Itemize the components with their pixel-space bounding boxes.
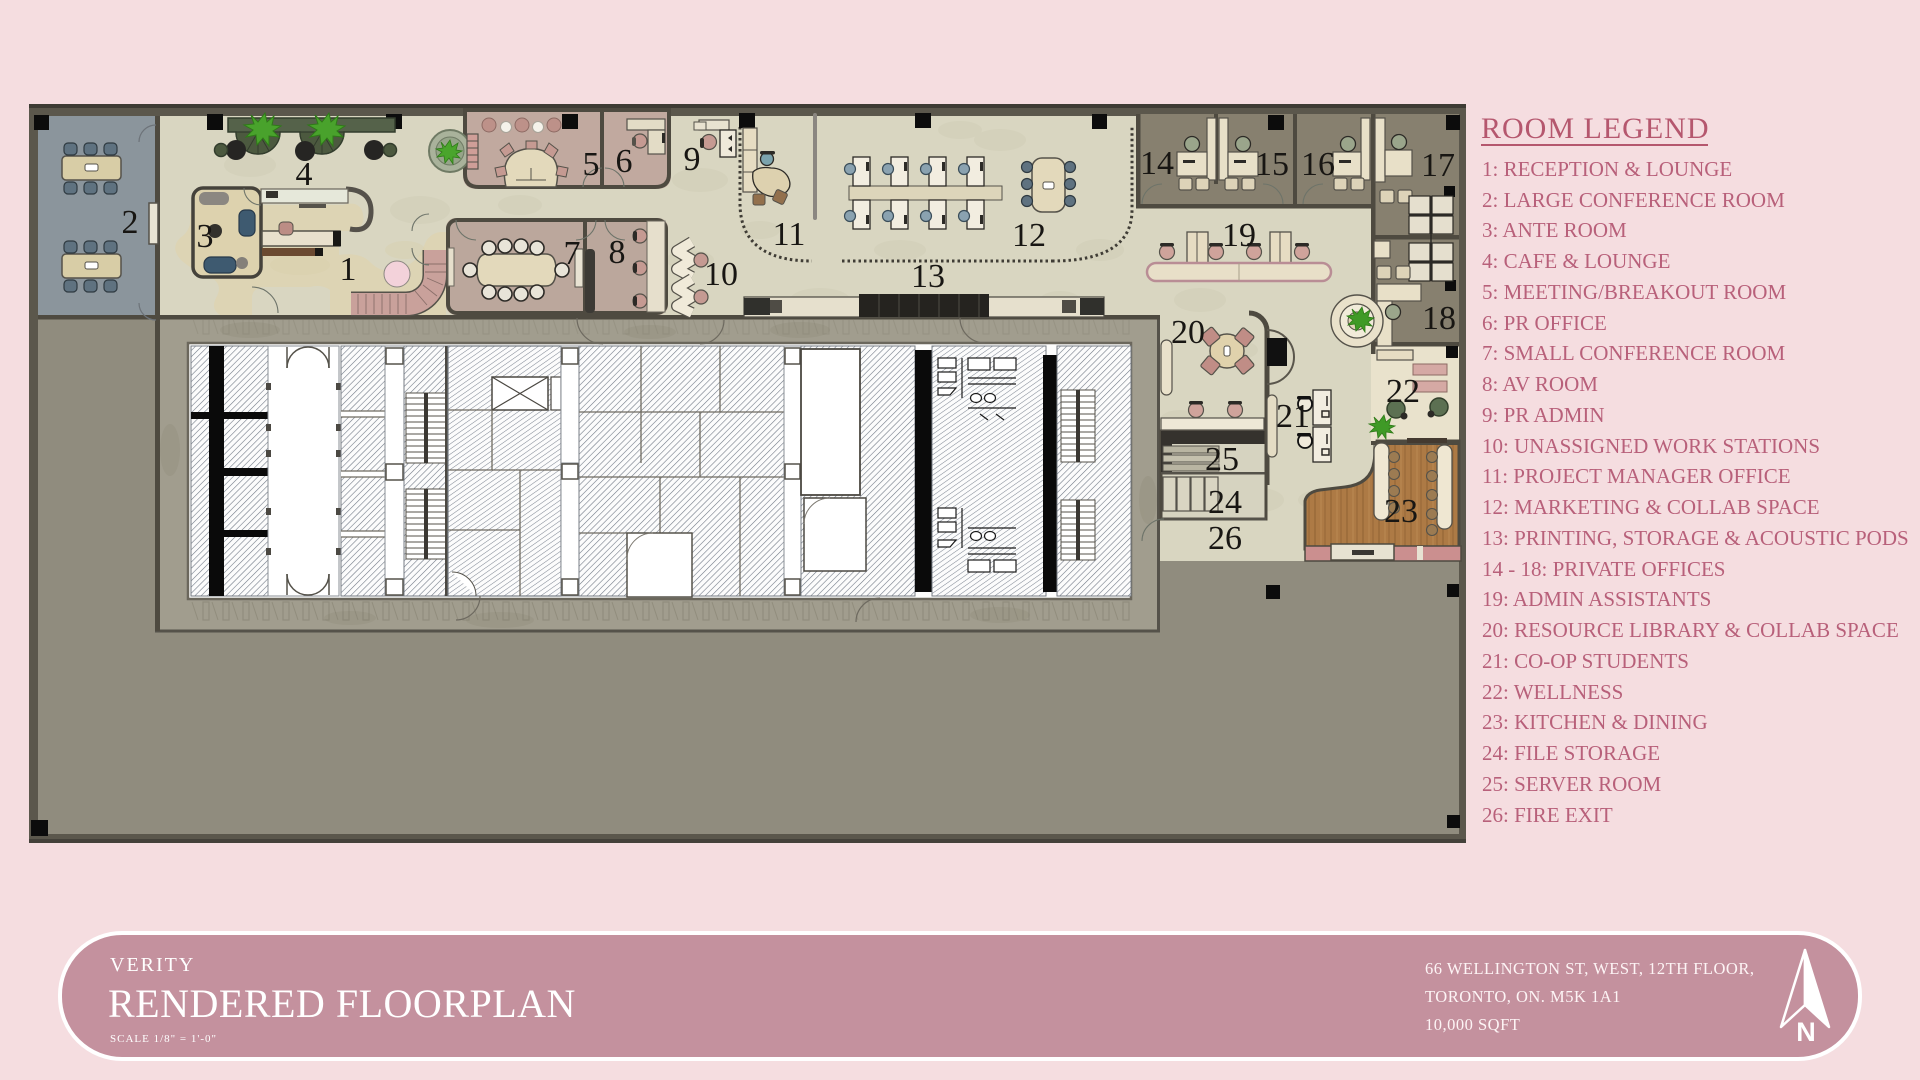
svg-text:SCALE 1/8" = 1'-0": SCALE 1/8" = 1'-0" xyxy=(110,1033,217,1045)
svg-text:7: 7 xyxy=(564,235,581,272)
svg-text:22: 22 xyxy=(1386,373,1420,410)
svg-text:26: 26 xyxy=(1208,520,1242,557)
svg-text:20: 20 xyxy=(1171,314,1205,351)
svg-text:11: PROJECT MANAGER OFFICE: 11: PROJECT MANAGER OFFICE xyxy=(1482,464,1791,488)
svg-text:3: ANTE ROOM: 3: ANTE ROOM xyxy=(1482,218,1627,242)
svg-text:9: 9 xyxy=(684,141,701,178)
svg-text:18: 18 xyxy=(1422,300,1456,337)
svg-text:N: N xyxy=(1796,1017,1816,1047)
svg-text:26: FIRE EXIT: 26: FIRE EXIT xyxy=(1482,803,1613,827)
svg-text:19: ADMIN ASSISTANTS: 19: ADMIN ASSISTANTS xyxy=(1482,587,1711,611)
svg-text:15: 15 xyxy=(1255,146,1289,183)
svg-text:10,000 SQFT: 10,000 SQFT xyxy=(1425,1015,1520,1034)
svg-text:21: CO-OP STUDENTS: 21: CO-OP STUDENTS xyxy=(1482,649,1689,673)
svg-text:12: MARKETING & COLLAB SPACE: 12: MARKETING & COLLAB SPACE xyxy=(1482,495,1820,519)
svg-text:7: SMALL CONFERENCE ROOM: 7: SMALL CONFERENCE ROOM xyxy=(1482,341,1785,365)
svg-text:66 WELLINGTON ST, WEST, 12TH F: 66 WELLINGTON ST, WEST, 12TH FLOOR, xyxy=(1425,959,1754,978)
svg-text:17: 17 xyxy=(1421,147,1455,184)
svg-text:6: 6 xyxy=(616,143,633,180)
svg-text:6: PR OFFICE: 6: PR OFFICE xyxy=(1482,311,1607,335)
svg-text:23: 23 xyxy=(1384,493,1418,530)
svg-text:12: 12 xyxy=(1012,217,1046,254)
svg-text:1: 1 xyxy=(340,251,357,288)
svg-text:1: RECEPTION & LOUNGE: 1: RECEPTION & LOUNGE xyxy=(1482,157,1732,181)
svg-text:14: 14 xyxy=(1140,145,1174,182)
svg-text:8: AV ROOM: 8: AV ROOM xyxy=(1482,372,1598,396)
svg-text:2: 2 xyxy=(122,204,139,241)
svg-text:21: 21 xyxy=(1276,398,1310,435)
svg-text:13: 13 xyxy=(911,258,945,295)
svg-text:5: 5 xyxy=(583,146,600,183)
svg-text:4: 4 xyxy=(296,156,313,193)
svg-text:19: 19 xyxy=(1222,217,1256,254)
svg-text:16: 16 xyxy=(1301,146,1335,183)
svg-text:14 - 18: PRIVATE OFFICES: 14 - 18: PRIVATE OFFICES xyxy=(1482,557,1726,581)
svg-text:13: PRINTING, STORAGE & ACOUST: 13: PRINTING, STORAGE & ACOUSTIC PODS xyxy=(1482,526,1909,550)
svg-text:11: 11 xyxy=(773,216,806,253)
svg-text:5: MEETING/BREAKOUT ROOM: 5: MEETING/BREAKOUT ROOM xyxy=(1482,280,1786,304)
svg-text:RENDERED FLOORPLAN: RENDERED FLOORPLAN xyxy=(108,981,576,1026)
svg-text:8: 8 xyxy=(609,234,626,271)
svg-text:TORONTO, ON. M5K 1A1: TORONTO, ON. M5K 1A1 xyxy=(1425,987,1621,1006)
svg-text:25: SERVER ROOM: 25: SERVER ROOM xyxy=(1482,772,1662,796)
svg-text:4: CAFE & LOUNGE: 4: CAFE & LOUNGE xyxy=(1482,249,1670,273)
svg-text:ROOM LEGEND: ROOM LEGEND xyxy=(1481,112,1710,145)
svg-text:24: 24 xyxy=(1208,484,1242,521)
svg-text:9: PR ADMIN: 9: PR ADMIN xyxy=(1482,403,1605,427)
svg-text:24: FILE STORAGE: 24: FILE STORAGE xyxy=(1482,741,1660,765)
svg-text:22: WELLNESS: 22: WELLNESS xyxy=(1482,680,1623,704)
svg-text:2: LARGE CONFERENCE ROOM: 2: LARGE CONFERENCE ROOM xyxy=(1482,188,1785,212)
svg-text:25: 25 xyxy=(1205,441,1239,478)
svg-text:20: RESOURCE LIBRARY & COLLAB: 20: RESOURCE LIBRARY & COLLAB SPACE xyxy=(1482,618,1899,642)
svg-text:VERITY: VERITY xyxy=(110,954,195,976)
svg-text:10: UNASSIGNED WORK STATIONS: 10: UNASSIGNED WORK STATIONS xyxy=(1482,434,1820,458)
svg-text:23: KITCHEN & DINING: 23: KITCHEN & DINING xyxy=(1482,710,1708,734)
svg-text:3: 3 xyxy=(197,218,214,255)
svg-text:10: 10 xyxy=(704,256,738,293)
